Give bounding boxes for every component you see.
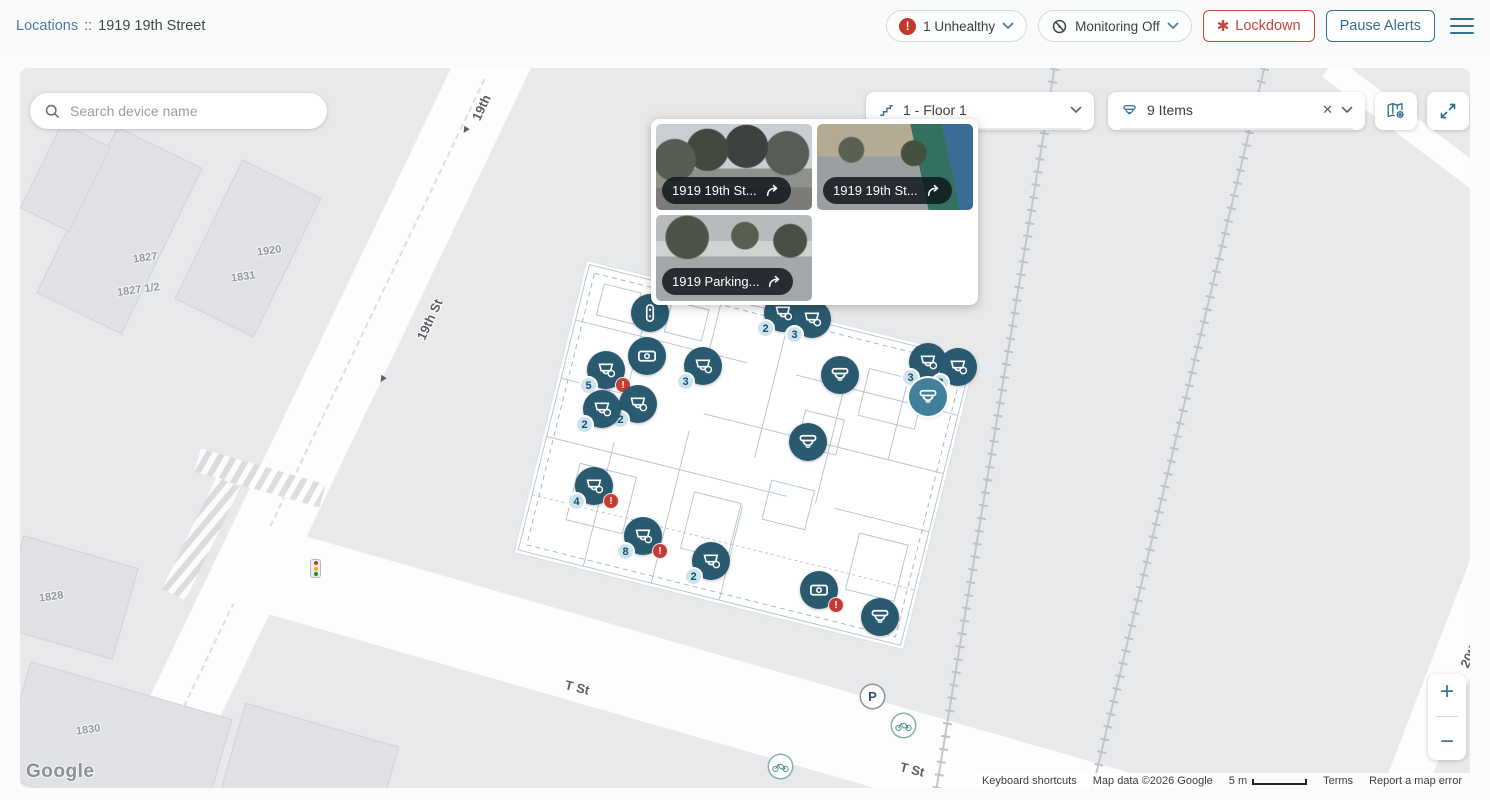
camera-name: 1919 19th St... <box>672 183 757 198</box>
device-count-badge: 4 <box>567 492 586 511</box>
multi-camera-icon <box>625 391 651 417</box>
device-count-badge: 3 <box>785 325 804 344</box>
multi-camera-icon <box>589 396 615 422</box>
device-count-badge: 2 <box>756 319 775 338</box>
dome-camera-icon <box>795 429 821 455</box>
camera-name-pill: 1919 19th St... <box>662 177 791 204</box>
camera-thumbnail[interactable]: 1919 19th St... <box>817 124 973 210</box>
floorplan-overlay <box>515 261 976 649</box>
device-marker-multi[interactable]: 4! <box>575 467 613 505</box>
chevron-down-icon <box>1167 22 1179 30</box>
terms-link[interactable]: Terms <box>1315 773 1361 788</box>
device-marker-box[interactable]: ! <box>800 571 838 609</box>
map-gear-icon <box>1385 100 1407 122</box>
street-label: 19th St <box>414 297 446 343</box>
dome-camera-icon <box>867 604 893 630</box>
device-marker-multi[interactable]: 3 <box>793 300 831 338</box>
dome-camera-icon <box>827 362 853 388</box>
lockdown-label: Lockdown <box>1235 18 1300 34</box>
device-marker-dome[interactable] <box>789 423 827 461</box>
device-count-badge: 3 <box>676 372 695 391</box>
building-block <box>174 160 321 338</box>
unhealthy-alert-badge: ! <box>828 597 844 613</box>
google-logo: Google <box>26 761 94 783</box>
breadcrumb-separator: :: <box>84 18 92 34</box>
traffic-light-icon <box>310 559 321 578</box>
map-settings-button[interactable] <box>1375 92 1417 130</box>
parking-poi-icon[interactable]: P <box>861 685 884 708</box>
device-marker-multi[interactable]: 3 <box>939 348 977 386</box>
device-search <box>30 93 327 129</box>
map-canvas[interactable]: 35!22233!34!8!2! 19th19th StT StT St20th… <box>20 68 1470 788</box>
multi-camera-icon <box>799 306 825 332</box>
device-count-badge: 8 <box>616 542 635 561</box>
camera-name-pill: 1919 Parking... <box>662 268 793 295</box>
monitoring-dropdown[interactable]: Monitoring Off <box>1038 10 1192 42</box>
open-arrow-icon[interactable] <box>767 275 783 288</box>
camera-name: 1919 Parking... <box>672 274 759 289</box>
breadcrumb-current: 1919 19th Street <box>98 18 205 34</box>
expand-arrows-icon <box>1438 101 1458 121</box>
map-scale: 5 m <box>1221 773 1315 788</box>
multi-camera-icon <box>593 357 619 383</box>
unhealthy-alert-badge: ! <box>652 543 668 559</box>
search-input[interactable] <box>70 103 313 119</box>
hamburger-menu-icon[interactable] <box>1450 18 1474 35</box>
keyboard-shortcuts-link[interactable]: Keyboard shortcuts <box>974 773 1085 788</box>
unhealthy-dropdown[interactable]: ! 1 Unhealthy <box>886 10 1027 42</box>
multi-camera-icon <box>630 523 656 549</box>
search-icon <box>44 103 61 120</box>
device-marker-dome[interactable] <box>861 598 899 636</box>
open-arrow-icon[interactable] <box>765 184 781 197</box>
map-data-label: Map data ©2026 Google <box>1085 773 1221 788</box>
building-block <box>221 703 400 788</box>
map-attribution: Keyboard shortcuts Map data ©2026 Google… <box>974 773 1470 788</box>
device-marker-multi[interactable]: 8! <box>624 517 662 555</box>
stairs-icon <box>878 102 895 119</box>
chevron-down-icon <box>1070 106 1082 114</box>
clear-icon[interactable]: ✕ <box>1322 102 1333 118</box>
bicycle-poi-icon[interactable] <box>892 714 915 737</box>
multi-camera-icon <box>698 548 724 574</box>
camera-thumbnail[interactable]: 1919 Parking... <box>656 215 812 301</box>
unhealthy-alert-badge: ! <box>603 493 619 509</box>
map-zoom-control: + − <box>1428 674 1466 760</box>
report-map-error-link[interactable]: Report a map error <box>1361 773 1470 788</box>
breadcrumb: Locations :: 1919 19th Street <box>16 18 205 34</box>
chevron-down-icon <box>1002 22 1014 30</box>
device-marker-multi[interactable]: 2 <box>619 385 657 423</box>
pause-alerts-label: Pause Alerts <box>1340 18 1421 34</box>
building-block <box>20 535 139 659</box>
unhealthy-label: 1 Unhealthy <box>923 19 995 34</box>
top-bar: Locations :: 1919 19th Street ! 1 Unheal… <box>0 0 1490 52</box>
multi-camera-icon <box>690 353 716 379</box>
pause-alerts-button[interactable]: Pause Alerts <box>1326 10 1435 42</box>
camera-icon <box>1120 101 1139 120</box>
lockdown-button[interactable]: ✱ Lockdown <box>1203 10 1315 42</box>
scale-bar <box>1252 779 1307 785</box>
multi-camera-icon <box>581 473 607 499</box>
device-marker-multi[interactable]: 2 <box>692 542 730 580</box>
device-marker-dome-selected[interactable] <box>909 378 947 416</box>
floor-selector-value: 1 - Floor 1 <box>903 102 1062 118</box>
device-marker-dome[interactable] <box>821 356 859 394</box>
device-marker-multi[interactable]: 2 <box>583 390 621 428</box>
bicycle-poi-icon[interactable] <box>769 755 792 778</box>
unhealthy-alert-icon: ! <box>899 18 916 35</box>
scale-label: 5 m <box>1229 775 1247 787</box>
multi-camera-icon <box>915 349 941 375</box>
railroad-track <box>1086 68 1269 788</box>
items-filter-value: 9 Items <box>1147 102 1314 118</box>
asterisk-icon: ✱ <box>1217 17 1230 35</box>
device-marker-multi[interactable]: 5! <box>587 351 625 389</box>
device-marker-box[interactable] <box>628 337 666 375</box>
monitoring-label: Monitoring Off <box>1075 19 1160 34</box>
box-camera-icon <box>634 343 660 369</box>
zoom-divider <box>1436 716 1458 717</box>
device-count-badge: 2 <box>575 415 594 434</box>
camera-name: 1919 19th St... <box>833 183 918 198</box>
open-arrow-icon[interactable] <box>926 184 942 197</box>
road-top-right <box>1322 68 1470 198</box>
fullscreen-button[interactable] <box>1427 92 1469 130</box>
dome-camera-icon <box>915 384 941 410</box>
monitoring-off-icon <box>1051 18 1068 35</box>
zoom-out-button[interactable]: − <box>1428 730 1466 754</box>
camera-preview-popup: 1919 19th St... 1919 19th St... 1919 Par… <box>651 119 978 305</box>
zoom-in-button[interactable]: + <box>1428 680 1466 704</box>
device-marker-multi[interactable]: 3 <box>684 347 722 385</box>
items-filter-dropdown[interactable]: 9 Items ✕ <box>1108 92 1365 130</box>
device-count-badge: 2 <box>684 567 703 586</box>
multi-camera-icon <box>945 354 971 380</box>
camera-name-pill: 1919 19th St... <box>823 177 952 204</box>
camera-thumbnail[interactable]: 1919 19th St... <box>656 124 812 210</box>
breadcrumb-locations-link[interactable]: Locations <box>16 18 78 34</box>
box-camera-icon <box>806 577 832 603</box>
chevron-down-icon <box>1341 106 1353 114</box>
